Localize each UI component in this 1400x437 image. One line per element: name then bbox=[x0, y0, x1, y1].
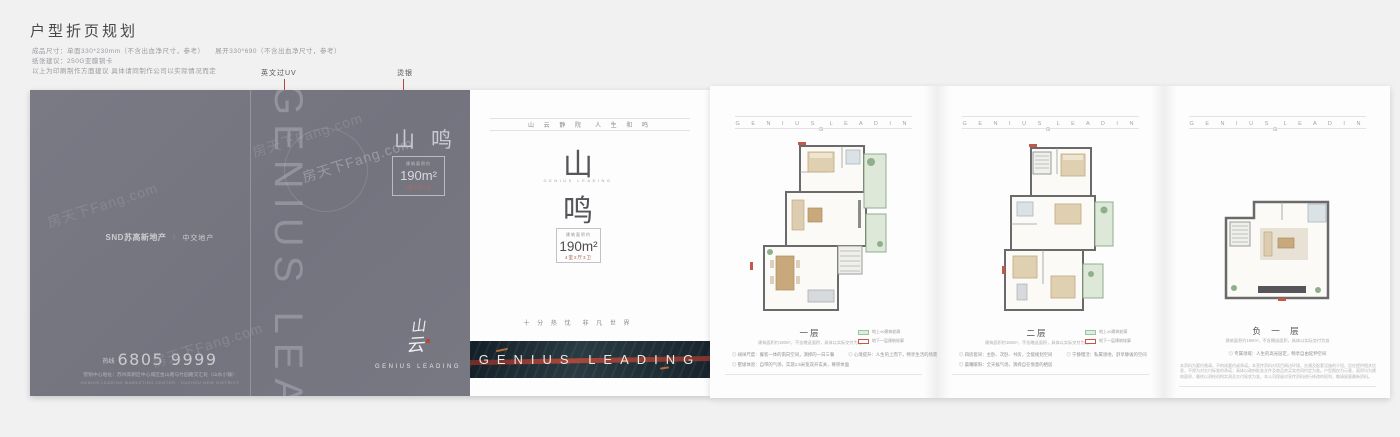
flap-area-value: 190m² bbox=[393, 168, 444, 183]
front-cover-panel: 山 云 静 院 人 生 和 鸣 山 GENIUS LEADING 鸣 建筑面积约… bbox=[470, 90, 710, 396]
cover-name-en: GENIUS LEADING bbox=[528, 178, 628, 183]
legend-swatch-basement bbox=[1085, 339, 1096, 344]
panel-bottom-rule bbox=[1179, 386, 1376, 387]
feature-bullet: ◎ 四房套间：主卧、次卧、书房，全能规划空间 bbox=[959, 352, 1052, 357]
hotline-label: 热线 bbox=[102, 359, 114, 365]
page-title: 户型折页规划 bbox=[30, 20, 138, 41]
logo-divider: ｜ bbox=[170, 235, 178, 242]
panel-rule bbox=[962, 116, 1139, 117]
plan-legend: 地上±0建筑轮廓 地下一层建筑轮廓 bbox=[858, 329, 904, 347]
panel-rule bbox=[962, 128, 1139, 129]
annotation-silver-label: 烫银 bbox=[397, 68, 413, 78]
feature-bullets-row: ◎ 阔绰尺度：餐客一体的南向空间，演绎的一日三餐◎ 心境提升：人生的上而下，畅享… bbox=[732, 352, 951, 358]
feature-bullet: ◎ 墅级体验：自带的气场，实现1.5米宽双开玄关，尊崇体面 bbox=[732, 362, 849, 367]
legend-swatch-above-ground bbox=[1085, 330, 1096, 335]
spec-size: 成品尺寸：单面330*230mm（不含出血净尺寸，参考） 展开330*690（不… bbox=[32, 45, 341, 55]
hotline: 热线6805 9999 bbox=[50, 350, 270, 370]
legend-swatch-above-ground bbox=[858, 330, 869, 335]
floor-subtitle-basement: 建筑面积约190m²，不含赠送面积，具体以实际交付为准 bbox=[1194, 338, 1361, 344]
panel-header-letters: G E N I U S L E A D I N G bbox=[962, 119, 1139, 133]
cover-area-box: 建筑面积约 190m² 4室2厅3卫 bbox=[556, 228, 601, 263]
panel-rule bbox=[1189, 128, 1366, 129]
panel-header-letters: G E N I U S L E A D I N G bbox=[1189, 119, 1366, 133]
cover-name-char2: 鸣 bbox=[528, 186, 628, 230]
plan-legend: 地上±0建筑轮廓 地下一层建筑轮廓 bbox=[1085, 329, 1131, 347]
floorplan-drawing-level1 bbox=[750, 142, 900, 318]
annotation-uv-label: 英文过UV bbox=[261, 68, 297, 78]
hotline-number: 6805 9999 bbox=[117, 350, 217, 369]
legend-item: 地下一层建筑轮廓 bbox=[858, 338, 904, 344]
logo-caption: GENIUS LEADING bbox=[368, 364, 468, 370]
feature-bullet: ◎ 心境提升：人生的上而下，畅享生活的场景 bbox=[848, 352, 937, 357]
flap-room-layout: 4室2厅3卫 bbox=[393, 185, 444, 191]
feature-bullets-row: ◎ 四房套间：主卧、次卧、书房，全能规划空间◎ 宁静慢活：私属领地，舒享静谧的空… bbox=[959, 352, 1161, 358]
cover-area-value: 190m² bbox=[557, 239, 600, 254]
floorplan-drawing-level2 bbox=[977, 144, 1127, 316]
cover-rule-top bbox=[490, 118, 690, 119]
floor-title-level1: 一层 bbox=[765, 327, 855, 339]
flap-area-box: 建筑面积约 190m² 4室2厅3卫 bbox=[392, 156, 445, 196]
developer-logo-partner: 中交地产 bbox=[182, 235, 214, 242]
cover-image-band: GENIUS LEADING bbox=[470, 341, 710, 378]
floor-title-basement: 负 一 层 bbox=[1224, 325, 1331, 337]
panel-rule bbox=[735, 128, 912, 129]
floor-title-level2: 二层 bbox=[992, 327, 1082, 339]
panel-rule bbox=[735, 116, 912, 117]
feature-bullets-row: ◎ 墅级体验：自带的气场，实现1.5米宽双开玄关，尊崇体面 bbox=[732, 362, 863, 368]
spec-paper: 纸张建议：250G亚膜铜卡 bbox=[32, 55, 113, 65]
legend-label: 地上±0建筑轮廓 bbox=[872, 329, 900, 335]
legend-swatch-basement bbox=[858, 339, 869, 344]
feature-bullet: ◎ 晨曦暖阳：全天候气场，演绎自在惬意的栖居 bbox=[959, 362, 1052, 367]
floorplan-drawing-basement bbox=[1220, 190, 1335, 310]
panel-header-letters: G E N I U S L E A D I N G bbox=[735, 119, 912, 133]
cover-rule-bottom bbox=[490, 130, 690, 131]
legend-item: 地下一层建筑轮廓 bbox=[1085, 338, 1131, 344]
panel-bottom-rule bbox=[952, 374, 1149, 375]
feature-bullet: ◎ 专属领域：人生的高光层定，畅享自由延伸空间 bbox=[1194, 351, 1361, 357]
cover-area-label: 建筑面积约 bbox=[557, 232, 600, 238]
back-cover-panel: GENIUS LEADING SND苏高新地产｜中交地产 热线6805 9999… bbox=[30, 90, 470, 396]
legend-label: 地下一层建筑轮廓 bbox=[872, 338, 904, 344]
calligraphy-logo: 山 云 bbox=[388, 320, 448, 355]
inner-spread: G E N I U S L E A D I N G bbox=[710, 86, 1390, 398]
feature-bullet: ◎ 宁静慢活：私属领地，舒享静谧的空间 bbox=[1066, 352, 1146, 357]
panel-rule bbox=[1189, 116, 1366, 117]
red-seal-icon bbox=[426, 339, 430, 343]
disclaimer-paragraph: 本资料为要约邀请，不构成要约或承诺。本宣传资料对项目周边环境、交通及配套设施的介… bbox=[1180, 363, 1376, 379]
address-line-en: GENIUS LEADING MARKETING CENTER · SUZHOU… bbox=[55, 380, 265, 385]
flap-area-label: 建筑面积约 bbox=[393, 161, 444, 167]
feature-bullets-row: ◎ 晨曦暖阳：全天候气场，演绎自在惬意的栖居 bbox=[959, 362, 1066, 368]
cover-tagline-bottom: 十 分 热 忱 非 凡 世 界 bbox=[508, 318, 648, 327]
band-brand-text: GENIUS LEADING bbox=[470, 341, 710, 378]
panel-bottom-rule bbox=[725, 374, 922, 375]
outer-spread: GENIUS LEADING SND苏高新地产｜中交地产 热线6805 9999… bbox=[30, 90, 710, 396]
cover-tagline-top: 山 云 静 院 人 生 和 鸣 bbox=[490, 120, 690, 129]
legend-label: 地上±0建筑轮廓 bbox=[1099, 329, 1127, 335]
feature-bullet: ◎ 阔绰尺度：餐客一体的南向空间，演绎的一日三餐 bbox=[732, 352, 834, 357]
cover-room-layout: 4室2厅3卫 bbox=[557, 255, 600, 261]
address-line: 营销中心地址：苏州高新区中心城区金山路与竹园路交汇处（山水小镇） bbox=[40, 371, 280, 378]
legend-item: 地上±0建筑轮廓 bbox=[1085, 329, 1131, 335]
developer-logos: SND苏高新地产｜中交地产 bbox=[50, 232, 270, 243]
developer-logo-snd: SND苏高新地产 bbox=[106, 233, 167, 242]
spec-note: 以上为印刷制作方面建议 具体请同制作公司以实际情况而定 bbox=[32, 65, 216, 75]
legend-item: 地上±0建筑轮廓 bbox=[858, 329, 904, 335]
legend-label: 地下一层建筑轮廓 bbox=[1099, 338, 1131, 344]
calligraphy-char-yun: 云 bbox=[405, 335, 424, 354]
design-proof-canvas: 户型折页规划 成品尺寸：单面330*230mm（不含出血净尺寸，参考） 展开33… bbox=[0, 0, 1400, 437]
